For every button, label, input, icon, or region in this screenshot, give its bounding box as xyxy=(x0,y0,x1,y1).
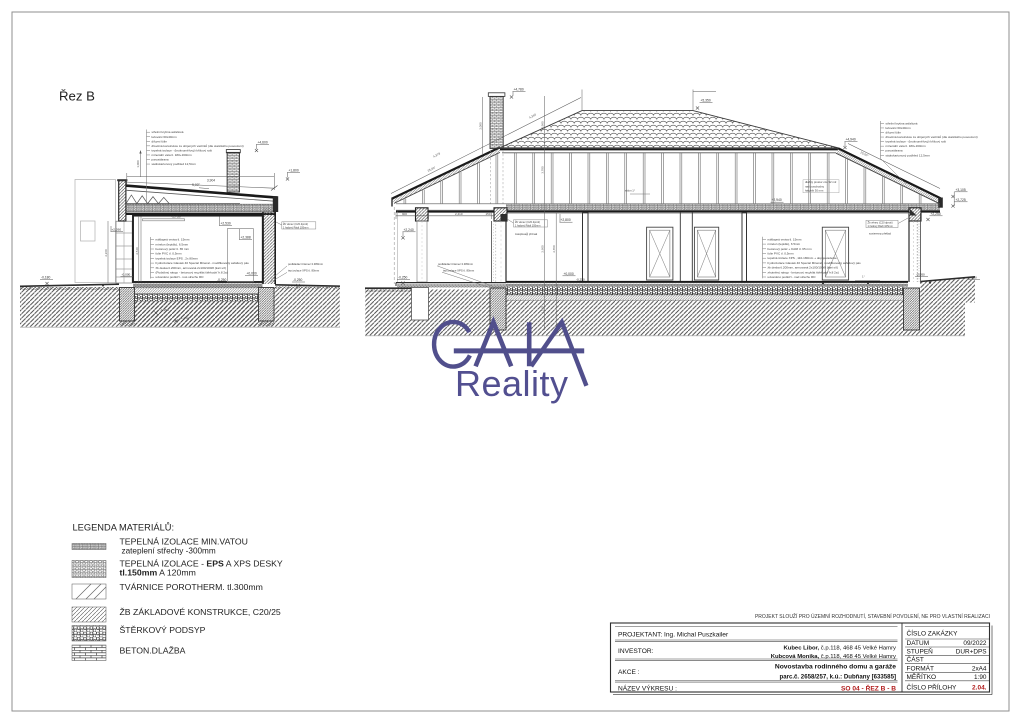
svg-text:difuzní fólie: difuzní fólie xyxy=(152,139,168,143)
svg-text:tepelná izolace - (krokvoměřov: tepelná izolace - (krokvoměřový) křížový… xyxy=(152,148,213,152)
svg-text:tep.izolace XPS tl. 80mm: tep.izolace XPS tl. 80mm xyxy=(288,269,320,273)
svg-text:+3,105: +3,105 xyxy=(956,188,966,192)
svg-text:TVÁRNICE POROTHERM. tl.300mm: TVÁRNICE POROTHERM. tl.300mm xyxy=(120,582,263,592)
svg-text:nášlapná vrstva tl. 15mm: nášlapná vrstva tl. 15mm xyxy=(768,237,802,241)
svg-text:ŠTĚRKOVÝ PODSYP: ŠTĚRKOVÝ PODSYP xyxy=(120,625,206,635)
svg-text:25,00°: 25,00° xyxy=(427,165,437,173)
svg-text:dřevěná konstrukce ze sbíjenýc: dřevěná konstrukce ze sbíjených vazníků … xyxy=(152,144,244,148)
svg-text:BETON.DLAŽBA: BETON.DLAŽBA xyxy=(120,646,186,656)
svg-text:1,000: 1,000 xyxy=(136,160,140,168)
svg-text:udusněné podloží - rost.střech: udusněné podloží - rost.střechu RD xyxy=(156,275,205,279)
svg-text:1,150: 1,150 xyxy=(540,306,544,314)
svg-text:-0,250: -0,250 xyxy=(576,278,585,282)
svg-text:tep.izolace XPS tl. 80mm: tep.izolace XPS tl. 80mm xyxy=(443,268,475,272)
svg-text:hydroizolace Glastek 40 Specia: hydroizolace Glastek 40 Special Mineral … xyxy=(768,261,862,265)
svg-text:Novostavba rodinného domu a ga: Novostavba rodinného domu a garáže xyxy=(775,664,896,671)
svg-text:+2,750: +2,750 xyxy=(171,215,181,219)
svg-text:-0,250: -0,250 xyxy=(217,278,227,282)
svg-text:1 řadový Rádi 105mm: 1 řadový Rádi 105mm xyxy=(515,223,540,227)
svg-text:minerální vata tl. 180+160mm: minerální vata tl. 180+160mm xyxy=(152,153,193,157)
svg-text:tl.150mm A 120mm: tl.150mm A 120mm xyxy=(120,568,196,578)
svg-text:sádrokartonový podhled 12,5mm: sádrokartonový podhled 12,5mm xyxy=(886,153,931,157)
svg-text:150: 150 xyxy=(486,212,491,216)
svg-text:+2,800: +2,800 xyxy=(561,218,571,222)
svg-text:tepelná izolace XPS , 110-180m: tepelná izolace XPS , 110-180mm + dopojo… xyxy=(768,256,837,260)
svg-text:hydroizolace Glastek 40 Specia: hydroizolace Glastek 40 Special Mineral … xyxy=(156,261,250,265)
svg-text:2,650: 2,650 xyxy=(552,245,556,253)
svg-text:+2,260: +2,260 xyxy=(112,228,122,232)
svg-text:betonový potěr tl. 65 mm: betonový potěr tl. 65 mm xyxy=(156,247,190,251)
svg-text:+4,600: +4,600 xyxy=(258,141,268,145)
svg-text:udusněné podloží - nad střechu: udusněné podloží - nad střechu RD xyxy=(768,275,817,279)
svg-text:mirelon (lepidlo), 6 5mm: mirelon (lepidlo), 6 5mm xyxy=(768,242,801,246)
svg-text:sádrokartonový podhled 12,5mm: sádrokartonový podhled 12,5mm xyxy=(152,162,197,166)
svg-text:-0,000: -0,000 xyxy=(122,273,131,277)
svg-text:4,378: 4,378 xyxy=(432,151,441,158)
svg-text:střešní krytina asfaltová: střešní krytina asfaltová xyxy=(152,130,184,134)
svg-text:2,980: 2,980 xyxy=(540,121,544,129)
svg-text:zateplení střechy -300mm: zateplení střechy -300mm xyxy=(122,547,216,556)
svg-text:-1,45d: -1,45d xyxy=(180,316,189,320)
svg-text:FORMÁT: FORMÁT xyxy=(907,663,934,672)
svg-text:+2,388: +2,388 xyxy=(241,236,251,240)
svg-text:+2,725: +2,725 xyxy=(956,198,966,202)
svg-text:ČÍSLO PŘÍLOHY: ČÍSLO PŘÍLOHY xyxy=(907,683,958,692)
svg-text:+2,530: +2,530 xyxy=(221,222,231,226)
svg-text:žb deska tl.200mm, armovaná 2x: žb deska tl.200mm, armovaná 2x100/100/8 … xyxy=(156,266,227,270)
svg-text:střešní krytina asfaltová: střešní krytina asfaltová xyxy=(886,121,918,125)
svg-text:-1,15d: -1,15d xyxy=(160,308,169,312)
svg-text:-0,050: -0,050 xyxy=(916,273,925,277)
svg-text:laťování 60x40mm: laťování 60x40mm xyxy=(152,135,178,139)
svg-text:(Podsibný násyp - betonový rec: (Podsibný násyp - betonový recyklát štěr… xyxy=(156,271,228,275)
svg-text:+0,000: +0,000 xyxy=(247,272,257,276)
svg-text:folie PVC tl. 0,5mm: folie PVC tl. 0,5mm xyxy=(156,252,183,256)
svg-text:ŽB ZÁKLADOVÉ KONSTRUKCE, C20/2: ŽB ZÁKLADOVÉ KONSTRUKCE, C20/25 xyxy=(120,607,281,617)
svg-text:INVESTOR:: INVESTOR: xyxy=(618,648,654,655)
svg-text:NÁZEV VÝKRESU :: NÁZEV VÝKRESU : xyxy=(618,684,677,693)
svg-text:SO 04 - ŘEZ B - B: SO 04 - ŘEZ B - B xyxy=(841,684,896,693)
svg-text:-0,180: -0,180 xyxy=(41,276,51,280)
svg-text:2,600: 2,600 xyxy=(540,245,544,253)
svg-text:sunteresny překlad: sunteresny překlad xyxy=(869,232,891,236)
svg-text:minerální vata tl. 180+160mm: minerální vata tl. 180+160mm xyxy=(886,144,927,148)
svg-text:dřevěná konstrukce ze sbíjenýc: dřevěná konstrukce ze sbíjených vazníků … xyxy=(886,135,978,139)
svg-text:Řez B: Řez B xyxy=(59,89,95,104)
svg-text:PROJEKTANT: Ing. Michal Puszka: PROJEKTANT: Ing. Michal Puszkailer xyxy=(618,632,729,639)
svg-text:4,340: 4,340 xyxy=(528,112,537,119)
svg-text:+2,250: +2,250 xyxy=(931,212,941,216)
svg-text:podkladací trámec tl.380mm: podkladací trámec tl.380mm xyxy=(438,262,474,266)
svg-text:2,260: 2,260 xyxy=(104,249,108,257)
svg-text:+1,800: +1,800 xyxy=(289,169,299,173)
svg-text:DATUM: DATUM xyxy=(907,640,930,647)
svg-text:parozábrana: parozábrana xyxy=(152,158,169,162)
svg-text:Kubcová Monika, č.p.118, 468 4: Kubcová Monika, č.p.118, 468 45 Velké Ha… xyxy=(771,654,896,660)
svg-text:3,904: 3,904 xyxy=(207,178,215,182)
svg-text:+2,240: +2,240 xyxy=(404,228,414,232)
svg-text:TEPELNÁ IZOLACE MIN.VATOU: TEPELNÁ IZOLACE MIN.VATOU xyxy=(120,537,248,547)
svg-text:3,780: 3,780 xyxy=(540,166,544,174)
svg-text:+4,780: +4,780 xyxy=(514,88,524,92)
svg-text:MĚŘÍTKO: MĚŘÍTKO xyxy=(907,672,937,681)
svg-text:Kubec Libor, č.p.118, 468 45 V: Kubec Libor, č.p.118, 468 45 Velké Hamry xyxy=(783,646,896,652)
svg-text:parozábrana: parozábrana xyxy=(886,149,903,153)
svg-text:PROJEKT SLOUŽÍ PRO ÚZEMNÍ ROZH: PROJEKT SLOUŽÍ PRO ÚZEMNÍ ROZHODNUTÍ, ST… xyxy=(755,612,990,620)
svg-text:hárybik 30 mm: hárybik 30 mm xyxy=(805,189,824,193)
svg-text:+0,000: +0,000 xyxy=(564,272,574,276)
svg-text:+5,350: +5,350 xyxy=(701,99,711,103)
svg-text:ČÁST: ČÁST xyxy=(907,655,924,664)
svg-text:parc.č. 2658/257, k.ú.: Dubňa: parc.č. 2658/257, k.ú.: Dubňany [633585] xyxy=(779,674,896,681)
svg-text:sklon 1°: sklon 1° xyxy=(625,189,635,193)
svg-text:tepelná izolace EPS , 2x 80mm: tepelná izolace EPS , 2x 80mm xyxy=(156,256,199,260)
svg-text:Reality: Reality xyxy=(455,363,569,404)
svg-text:STUPEŇ: STUPEŇ xyxy=(907,646,934,655)
svg-text:+4,940: +4,940 xyxy=(846,138,856,142)
svg-text:folie PVC tl. 0,5mm: folie PVC tl. 0,5mm xyxy=(768,252,795,256)
svg-text:-0,250: -0,250 xyxy=(293,278,303,282)
svg-text:2,410: 2,410 xyxy=(455,212,463,216)
svg-text:laťování 60x40mm: laťování 60x40mm xyxy=(886,126,912,130)
svg-text:tepelná izolace - (krokvoměřov: tepelná izolace - (krokvoměřový) křížový… xyxy=(886,140,947,144)
svg-text:nášlapná vrstva tl. 15mm: nášlapná vrstva tl. 15mm xyxy=(156,238,190,242)
svg-text:5,00°: 5,00° xyxy=(192,183,200,187)
svg-text:betonový potěr + KARI tl. 65 m: betonový potěr + KARI tl. 65 mm xyxy=(768,247,813,251)
svg-text:AKCE :: AKCE : xyxy=(618,669,640,676)
svg-text:900: 900 xyxy=(402,212,407,216)
svg-text:2,540: 2,540 xyxy=(135,247,139,255)
svg-text:2.04.: 2.04. xyxy=(972,685,987,692)
svg-text:1 řadový Rádi 105mm: 1 řadový Rádi 105mm xyxy=(283,225,308,229)
svg-text:DUR+DPS: DUR+DPS xyxy=(956,648,987,655)
svg-text:LEGENDA MATERIÁLŮ:: LEGENDA MATERIÁLŮ: xyxy=(73,522,175,533)
svg-text:09/2022: 09/2022 xyxy=(963,640,987,647)
svg-text:1:90: 1:90 xyxy=(974,674,987,681)
svg-text:ČÍSLO ZAKÁZKY: ČÍSLO ZAKÁZKY xyxy=(907,629,959,638)
svg-text:žb deska tl.200mm, armovaná 2x: žb deska tl.200mm, armovaná 2x100/100/8 … xyxy=(768,266,839,270)
svg-text:podkladací trámec tl.380mm: podkladací trámec tl.380mm xyxy=(288,262,324,266)
svg-text:2,080: 2,080 xyxy=(478,122,482,130)
svg-text:zateplovací přiznak: zateplovací přiznak xyxy=(515,232,538,236)
svg-text:zhutněný násyp - betonový recy: zhutněný násyp - betonový recyklát štěrk… xyxy=(768,270,839,274)
svg-text:-0,250: -0,250 xyxy=(398,275,408,279)
svg-text:difuzní fólie: difuzní fólie xyxy=(886,131,902,135)
svg-text:1 řadový Rádi 105mm: 1 řadový Rádi 105mm xyxy=(868,224,893,228)
svg-text:mirelon (lepidlo), 6.5mm: mirelon (lepidlo), 6.5mm xyxy=(156,242,189,246)
svg-text:2xA4: 2xA4 xyxy=(972,665,987,672)
svg-text:+2,940: +2,940 xyxy=(772,198,782,202)
svg-text:1°: 1° xyxy=(862,275,865,279)
svg-text:-0,100: -0,100 xyxy=(968,276,977,280)
